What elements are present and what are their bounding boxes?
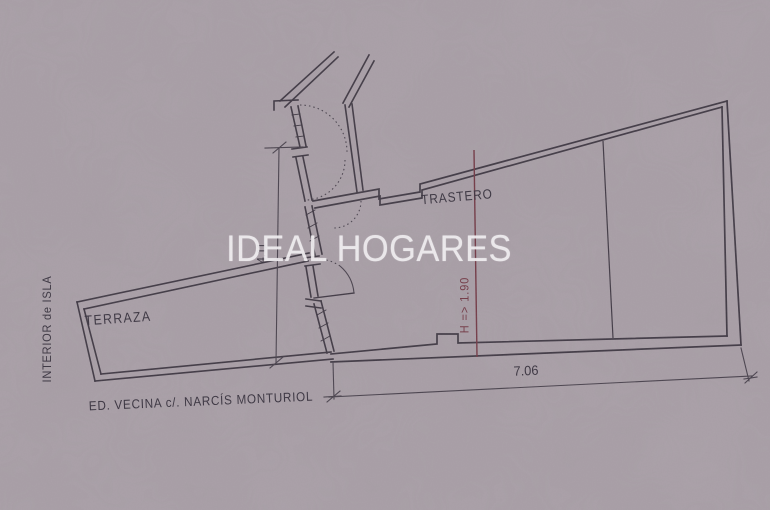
ceiling-height-note: H => 1.90 [460,277,472,334]
watermark-text: IDEAL HOGARES [226,228,512,270]
interior-isla-label: INTERIOR de ISLA [41,276,53,383]
scanned-floorplan-photo: TRASTERO TERRAZA ED. VECINA c/. NARCÍS M… [0,0,770,510]
entrance-corridor-walls [274,52,374,201]
dimension-lines [265,142,757,402]
interior-partition-line [603,141,613,338]
dimension-width-label: 7.06 [513,364,539,379]
